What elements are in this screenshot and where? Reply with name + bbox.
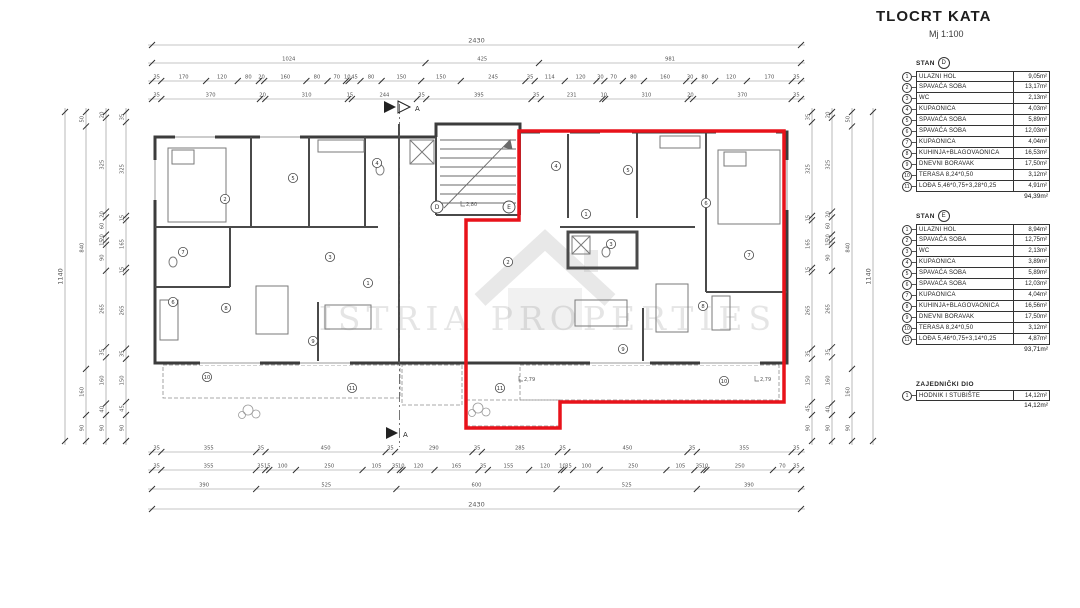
- svg-text:114: 114: [545, 75, 556, 81]
- svg-text:15: 15: [264, 464, 271, 470]
- svg-text:35: 35: [418, 93, 425, 99]
- room-name: HODNIK I STUBIŠTE: [917, 391, 1013, 400]
- room-area: 3,89m²: [1013, 257, 1049, 267]
- room-number-marker: 6: [701, 198, 710, 207]
- room-name: LOĐA 5,46*0,75+3,28*0,25: [917, 181, 1013, 191]
- table-row: 9DNEVNI BORAVAK17,50m²: [902, 159, 1050, 170]
- svg-text:390: 390: [199, 483, 209, 489]
- row-number: 6: [902, 280, 912, 290]
- svg-text:15: 15: [120, 267, 126, 274]
- room-number-marker: 5: [623, 165, 632, 174]
- room-number-marker: 10: [719, 376, 728, 385]
- row-number: 1: [902, 391, 912, 401]
- room-name: SPAVAĆA SOBA: [917, 279, 1013, 289]
- svg-text:60: 60: [100, 223, 106, 230]
- table-row: 11LOĐA 5,46*0,75+3,14*0,254,87m²: [902, 334, 1050, 345]
- svg-text:15: 15: [347, 93, 354, 99]
- room-number-marker: 1: [581, 209, 590, 218]
- svg-text:120: 120: [414, 464, 424, 470]
- svg-text:10: 10: [702, 464, 709, 470]
- room-area: 2,13m²: [1013, 93, 1049, 103]
- room-area: 14,12m²: [1013, 391, 1049, 400]
- svg-text:355: 355: [204, 446, 214, 452]
- table-total: 14,12m²: [902, 402, 1050, 409]
- unit-letter-marker: E: [503, 201, 515, 213]
- svg-text:10: 10: [721, 379, 728, 385]
- row-number: 4: [902, 258, 912, 268]
- svg-text:840: 840: [80, 243, 86, 253]
- room-area: 3,12m²: [1013, 323, 1049, 333]
- svg-text:35: 35: [793, 446, 800, 452]
- table-header: ZAJEDNIČKI DIO: [916, 381, 1050, 388]
- table-row: 5SPAVAĆA SOBA5,89m²: [902, 268, 1050, 279]
- svg-text:45: 45: [120, 405, 126, 412]
- room-area: 13,17m²: [1013, 82, 1049, 92]
- room-area: 12,03m²: [1013, 279, 1049, 289]
- svg-text:390: 390: [744, 483, 754, 489]
- svg-text:310: 310: [641, 93, 651, 99]
- row-number: 4: [902, 105, 912, 115]
- room-name: KUPAONICA: [917, 104, 1013, 114]
- room-name: SPAVAĆA SOBA: [917, 126, 1013, 136]
- svg-text:3: 3: [328, 255, 331, 261]
- svg-text:11: 11: [349, 386, 356, 392]
- svg-text:395: 395: [474, 93, 484, 99]
- svg-text:265: 265: [100, 304, 106, 314]
- svg-text:40: 40: [100, 406, 106, 413]
- svg-text:9: 9: [621, 347, 624, 353]
- room-area: 16,53m²: [1013, 148, 1049, 158]
- room-name: SPAVAĆA SOBA: [917, 235, 1013, 245]
- table-row: 4KUPAONICA3,89m²: [902, 257, 1050, 268]
- row-number: 11: [902, 182, 912, 192]
- table-row: 9DNEVNI BORAVAK17,50m²: [902, 312, 1050, 323]
- row-number: 2: [902, 236, 912, 246]
- table-total: 93,71m²: [902, 346, 1050, 353]
- row-number: 2: [902, 83, 912, 93]
- svg-text:20: 20: [259, 93, 266, 99]
- row-number: 5: [902, 116, 912, 126]
- table-row: 4KUPAONICA4,03m²: [902, 104, 1050, 115]
- svg-text:70: 70: [610, 75, 617, 81]
- room-name: WC: [917, 246, 1013, 256]
- svg-text:250: 250: [324, 464, 334, 470]
- row-number: 3: [902, 247, 912, 257]
- svg-text:35: 35: [480, 464, 487, 470]
- svg-text:1: 1: [584, 212, 587, 218]
- svg-text:170: 170: [764, 75, 774, 81]
- svg-text:80: 80: [368, 75, 375, 81]
- room-number-marker: 10: [202, 372, 211, 381]
- room-number-marker: 9: [308, 336, 317, 345]
- table-header: STAND: [916, 57, 1050, 69]
- room-area: 4,03m²: [1013, 104, 1049, 114]
- table-title: STAN: [916, 60, 935, 67]
- svg-text:90: 90: [120, 425, 126, 432]
- svg-text:70: 70: [333, 75, 340, 81]
- row-number: 8: [902, 149, 912, 159]
- table-row: 3WC2,13m²: [902, 246, 1050, 257]
- svg-text:35: 35: [153, 446, 160, 452]
- room-area: 2,13m²: [1013, 246, 1049, 256]
- room-name: KUHINJA+BLAGOVAONICA: [917, 148, 1013, 158]
- room-number-marker: 1: [363, 278, 372, 287]
- svg-text:105: 105: [675, 464, 685, 470]
- svg-text:90: 90: [826, 254, 832, 261]
- area-table-common: ZAJEDNIČKI DIO1HODNIK I STUBIŠTE14,12m²1…: [902, 381, 1050, 409]
- room-area: 8,94m²: [1013, 225, 1049, 234]
- room-name: ULAZNI HOL: [917, 225, 1013, 234]
- svg-text:35: 35: [559, 446, 566, 452]
- area-table-stan-d: STAND1ULAZNI HOL9,05m²2SPAVAĆA SOBA13,17…: [902, 57, 1050, 200]
- svg-text:165: 165: [120, 239, 126, 249]
- svg-text:35: 35: [153, 464, 160, 470]
- svg-text:290: 290: [429, 446, 439, 452]
- svg-text:1: 1: [366, 281, 369, 287]
- svg-text:8: 8: [224, 306, 227, 312]
- svg-text:20: 20: [826, 112, 832, 119]
- room-number-marker: 3: [325, 252, 334, 261]
- room-area: 17,50m²: [1013, 312, 1049, 322]
- svg-text:35: 35: [100, 349, 106, 356]
- svg-text:35: 35: [474, 446, 481, 452]
- row-number: 9: [902, 160, 912, 170]
- row-number: 11: [902, 335, 912, 345]
- room-number-marker: 4: [551, 161, 560, 170]
- svg-text:310: 310: [302, 93, 312, 99]
- svg-text:450: 450: [622, 446, 632, 452]
- svg-text:160: 160: [280, 75, 290, 81]
- svg-text:40: 40: [826, 406, 832, 413]
- svg-text:35: 35: [153, 75, 160, 81]
- svg-text:30: 30: [687, 75, 694, 81]
- room-area: 4,87m²: [1013, 334, 1049, 344]
- row-number: 9: [902, 313, 912, 323]
- table-row: 8KUHINJA+BLAGOVAONICA16,56m²: [902, 301, 1050, 312]
- svg-text:3: 3: [609, 242, 612, 248]
- svg-text:120: 120: [726, 75, 736, 81]
- row-number: 1: [902, 225, 912, 235]
- table-row: 7KUPAONICA4,04m²: [902, 137, 1050, 148]
- room-number-marker: 8: [221, 303, 230, 312]
- svg-text:90: 90: [846, 425, 852, 432]
- svg-text:10: 10: [204, 375, 211, 381]
- svg-text:35: 35: [527, 75, 534, 81]
- room-number-marker: 7: [744, 250, 753, 259]
- svg-text:10: 10: [600, 93, 607, 99]
- room-name: SPAVAĆA SOBA: [917, 115, 1013, 125]
- room-area: 9,05m²: [1013, 72, 1049, 81]
- svg-text:15: 15: [100, 239, 106, 246]
- svg-text:90: 90: [806, 425, 812, 432]
- room-area: 4,04m²: [1013, 290, 1049, 300]
- svg-text:150: 150: [120, 375, 126, 385]
- svg-text:10: 10: [398, 464, 405, 470]
- svg-text:100: 100: [278, 464, 288, 470]
- table-title: ZAJEDNIČKI DIO: [916, 381, 974, 388]
- svg-text:80: 80: [314, 75, 321, 81]
- room-area: 5,89m²: [1013, 268, 1049, 278]
- room-number-marker: 11: [347, 383, 356, 392]
- svg-text:1024: 1024: [282, 57, 296, 63]
- svg-text:370: 370: [737, 93, 747, 99]
- table-header: STANE: [916, 210, 1050, 222]
- svg-text:35: 35: [793, 464, 800, 470]
- svg-text:325: 325: [826, 160, 832, 170]
- svg-text:20: 20: [826, 211, 832, 218]
- table-row: 10TERASA 8,24*0,503,12m²: [902, 170, 1050, 181]
- table-row: 1ULAZNI HOL8,94m²: [902, 224, 1050, 235]
- svg-text:90: 90: [80, 425, 86, 432]
- room-number-marker: 8: [698, 301, 707, 310]
- row-number: 5: [902, 269, 912, 279]
- svg-text:35: 35: [153, 93, 160, 99]
- svg-text:20: 20: [100, 112, 106, 119]
- svg-text:35: 35: [826, 349, 832, 356]
- unit-letter-marker: D: [431, 201, 443, 213]
- svg-text:265: 265: [826, 304, 832, 314]
- row-number: 7: [902, 138, 912, 148]
- room-name: SPAVAĆA SOBA: [917, 268, 1013, 278]
- svg-text:35: 35: [120, 350, 126, 357]
- svg-text:15: 15: [120, 215, 126, 222]
- room-number-marker: 6: [168, 297, 177, 306]
- svg-text:250: 250: [628, 464, 638, 470]
- svg-text:2,80: 2,80: [466, 202, 477, 208]
- svg-text:450: 450: [321, 446, 331, 452]
- svg-text:150: 150: [396, 75, 406, 81]
- svg-text:160: 160: [80, 387, 86, 397]
- svg-text:6: 6: [704, 201, 707, 207]
- svg-text:50: 50: [80, 116, 86, 123]
- svg-text:105: 105: [372, 464, 382, 470]
- svg-text:325: 325: [100, 160, 106, 170]
- svg-text:265: 265: [806, 305, 812, 315]
- svg-text:35: 35: [257, 464, 264, 470]
- room-name: DNEVNI BORAVAK: [917, 159, 1013, 169]
- svg-text:15: 15: [806, 215, 812, 222]
- room-area: 3,12m²: [1013, 170, 1049, 180]
- svg-text:120: 120: [540, 464, 550, 470]
- svg-text:2430: 2430: [468, 37, 485, 45]
- svg-text:D: D: [435, 204, 440, 211]
- svg-text:5: 5: [291, 176, 294, 182]
- svg-text:35: 35: [793, 75, 800, 81]
- svg-text:150: 150: [436, 75, 446, 81]
- svg-text:165: 165: [806, 239, 812, 249]
- room-number-marker: 4: [372, 158, 381, 167]
- svg-text:370: 370: [206, 93, 216, 99]
- svg-text:2: 2: [223, 197, 226, 203]
- table-row: 3WC2,13m²: [902, 93, 1050, 104]
- unit-letter: D: [938, 57, 950, 69]
- svg-text:100: 100: [581, 464, 591, 470]
- table-row: 1HODNIK I STUBIŠTE14,12m²: [902, 390, 1050, 401]
- svg-text:90: 90: [100, 254, 106, 261]
- room-name: LOĐA 5,46*0,75+3,14*0,25: [917, 334, 1013, 344]
- room-name: ULAZNI HOL: [917, 72, 1013, 81]
- room-name: KUPAONICA: [917, 137, 1013, 147]
- svg-text:600: 600: [472, 483, 482, 489]
- svg-text:5: 5: [626, 168, 629, 174]
- room-number-marker: 3: [606, 239, 615, 248]
- svg-text:2430: 2430: [468, 501, 485, 509]
- svg-text:244: 244: [379, 93, 390, 99]
- svg-text:35: 35: [793, 93, 800, 99]
- svg-text:70: 70: [779, 464, 786, 470]
- svg-text:35: 35: [387, 446, 394, 452]
- table-title: STAN: [916, 213, 935, 220]
- room-area: 4,04m²: [1013, 137, 1049, 147]
- svg-text:525: 525: [622, 483, 632, 489]
- svg-text:A: A: [403, 431, 408, 439]
- room-number-marker: 9: [618, 344, 627, 353]
- svg-text:150: 150: [806, 375, 812, 385]
- svg-text:7: 7: [747, 253, 750, 259]
- svg-text:50: 50: [846, 116, 852, 123]
- table-row: 5SPAVAĆA SOBA5,89m²: [902, 115, 1050, 126]
- svg-text:160: 160: [660, 75, 670, 81]
- room-markers: 12345678910111234567891011DE: [168, 158, 753, 392]
- row-number: 8: [902, 302, 912, 312]
- floor-plan-page: ISTRIA PROPERTIES: [0, 0, 1080, 608]
- room-number-marker: 2: [220, 194, 229, 203]
- svg-text:35: 35: [533, 93, 540, 99]
- room-name: TERASA 8,24*0,50: [917, 170, 1013, 180]
- svg-text:2,79: 2,79: [760, 377, 771, 383]
- room-area: 12,75m²: [1013, 235, 1049, 245]
- svg-text:355: 355: [739, 446, 749, 452]
- svg-text:265: 265: [120, 305, 126, 315]
- svg-text:35: 35: [689, 446, 696, 452]
- svg-text:11: 11: [497, 386, 504, 392]
- room-area: 5,89m²: [1013, 115, 1049, 125]
- svg-text:160: 160: [100, 375, 106, 385]
- svg-text:1140: 1140: [57, 268, 65, 285]
- svg-text:231: 231: [567, 93, 577, 99]
- table-total: 94,39m²: [902, 193, 1050, 200]
- svg-text:525: 525: [321, 483, 331, 489]
- svg-text:9: 9: [311, 339, 314, 345]
- table-row: 2SPAVAĆA SOBA13,17m²: [902, 82, 1050, 93]
- svg-text:35: 35: [565, 464, 572, 470]
- svg-text:80: 80: [630, 75, 637, 81]
- area-table-stan-e: STANE1ULAZNI HOL8,94m²2SPAVAĆA SOBA12,75…: [902, 210, 1050, 353]
- svg-text:20: 20: [687, 93, 694, 99]
- staircase: [440, 140, 516, 208]
- table-row: 6SPAVAĆA SOBA12,03m²: [902, 279, 1050, 290]
- room-name: KUHINJA+BLAGOVAONICA: [917, 301, 1013, 311]
- row-number: 10: [902, 324, 912, 334]
- svg-text:10: 10: [344, 75, 351, 81]
- svg-text:1140: 1140: [865, 268, 873, 285]
- room-name: KUPAONICA: [917, 257, 1013, 267]
- svg-text:90: 90: [100, 425, 106, 432]
- room-number-marker: 2: [503, 257, 512, 266]
- svg-text:170: 170: [179, 75, 189, 81]
- svg-text:45: 45: [351, 75, 358, 81]
- svg-text:160: 160: [826, 375, 832, 385]
- svg-text:A: A: [415, 105, 420, 113]
- table-row: 7KUPAONICA4,04m²: [902, 290, 1050, 301]
- room-area: 16,56m²: [1013, 301, 1049, 311]
- svg-text:30: 30: [597, 75, 604, 81]
- svg-text:425: 425: [477, 57, 487, 63]
- svg-text:35: 35: [806, 350, 812, 357]
- svg-text:155: 155: [504, 464, 514, 470]
- svg-text:35: 35: [806, 114, 812, 121]
- unit-letter: E: [938, 210, 950, 222]
- svg-text:90: 90: [826, 425, 832, 432]
- page-title: TLOCRT KATA: [876, 8, 991, 25]
- room-area: 4,91m²: [1013, 181, 1049, 191]
- row-number: 3: [902, 94, 912, 104]
- room-name: TERASA 8,24*0,50: [917, 323, 1013, 333]
- room-number-marker: 5: [288, 173, 297, 182]
- svg-text:35: 35: [120, 114, 126, 121]
- room-area: 12,03m²: [1013, 126, 1049, 136]
- table-row: 10TERASA 8,24*0,503,12m²: [902, 323, 1050, 334]
- svg-text:325: 325: [806, 164, 812, 174]
- row-number: 10: [902, 171, 912, 181]
- room-name: KUPAONICA: [917, 290, 1013, 300]
- row-number: 6: [902, 127, 912, 137]
- svg-text:6: 6: [171, 300, 174, 306]
- svg-text:120: 120: [576, 75, 586, 81]
- room-name: DNEVNI BORAVAK: [917, 312, 1013, 322]
- svg-text:325: 325: [120, 164, 126, 174]
- svg-text:2: 2: [506, 260, 509, 266]
- svg-text:250: 250: [735, 464, 745, 470]
- svg-text:E: E: [507, 204, 511, 211]
- scale-label: Mj 1:100: [929, 29, 964, 39]
- table-row: 2SPAVAĆA SOBA12,75m²: [902, 235, 1050, 246]
- terraces: [163, 365, 779, 426]
- svg-text:45: 45: [806, 405, 812, 412]
- svg-text:15: 15: [826, 239, 832, 246]
- svg-text:20: 20: [258, 75, 265, 81]
- svg-text:2,79: 2,79: [524, 377, 535, 383]
- svg-text:20: 20: [100, 211, 106, 218]
- svg-text:981: 981: [665, 57, 675, 63]
- room-name: WC: [917, 93, 1013, 103]
- svg-text:60: 60: [826, 223, 832, 230]
- table-row: 11LOĐA 5,46*0,75+3,28*0,254,91m²: [902, 181, 1050, 192]
- table-row: 6SPAVAĆA SOBA12,03m²: [902, 126, 1050, 137]
- svg-text:8: 8: [701, 304, 704, 310]
- table-row: 1ULAZNI HOL9,05m²: [902, 71, 1050, 82]
- table-row: 8KUHINJA+BLAGOVAONICA16,53m²: [902, 148, 1050, 159]
- svg-text:35: 35: [258, 446, 265, 452]
- row-number: 7: [902, 291, 912, 301]
- svg-text:80: 80: [701, 75, 708, 81]
- svg-text:355: 355: [204, 464, 214, 470]
- svg-text:285: 285: [515, 446, 525, 452]
- room-name: SPAVAĆA SOBA: [917, 82, 1013, 92]
- svg-text:80: 80: [245, 75, 252, 81]
- svg-text:160: 160: [846, 387, 852, 397]
- svg-text:15: 15: [806, 267, 812, 274]
- room-area: 17,50m²: [1013, 159, 1049, 169]
- room-number-marker: 7: [178, 247, 187, 256]
- svg-text:840: 840: [846, 243, 852, 253]
- svg-text:165: 165: [452, 464, 462, 470]
- row-number: 1: [902, 72, 912, 82]
- svg-text:7: 7: [181, 250, 184, 256]
- svg-text:245: 245: [488, 75, 498, 81]
- room-number-marker: 11: [495, 383, 504, 392]
- watermark-text: ISTRIA PROPERTIES: [319, 299, 777, 338]
